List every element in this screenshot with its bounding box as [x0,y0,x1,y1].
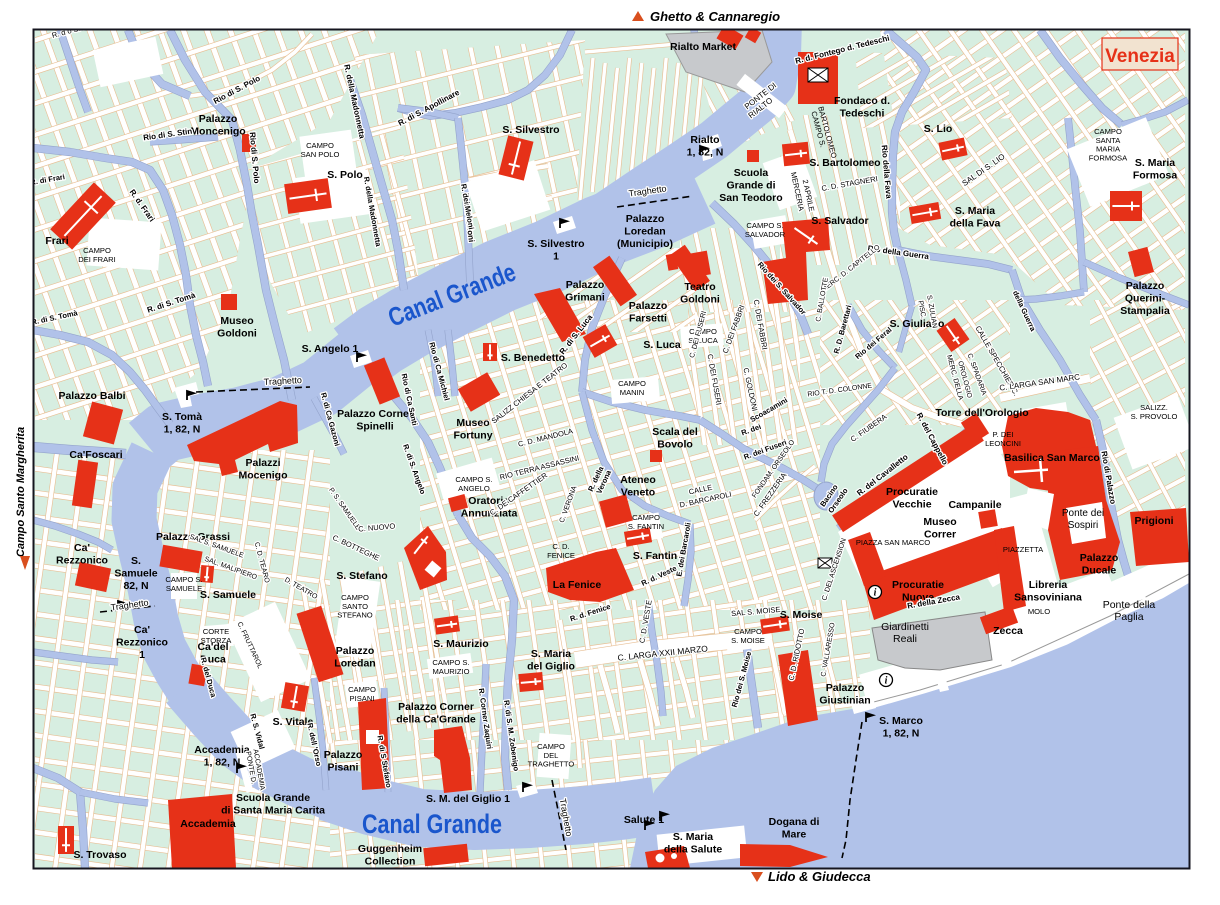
svg-text:Moncenigo: Moncenigo [190,125,245,137]
svg-text:Palazzo Corner: Palazzo Corner [337,408,413,420]
svg-text:Spinelli: Spinelli [356,420,393,432]
svg-text:Torre dell'Orologio: Torre dell'Orologio [935,407,1028,419]
svg-text:Prigioni: Prigioni [1134,515,1173,527]
svg-text:Scuola: Scuola [734,167,769,179]
svg-text:SAN POLO: SAN POLO [301,150,340,159]
svg-text:S. Trovaso: S. Trovaso [73,849,126,861]
svg-text:Rialto: Rialto [690,134,719,146]
svg-text:Tedeschi: Tedeschi [840,107,885,119]
svg-text:Palazzo Corner: Palazzo Corner [398,701,474,713]
svg-text:Libreria: Libreria [1029,579,1068,591]
svg-text:Samuele: Samuele [114,567,157,579]
svg-text:1, 82, N: 1, 82, N [164,423,201,435]
svg-text:Palazzo: Palazzo [629,300,668,312]
svg-text:S. Salvador: S. Salvador [811,215,868,227]
svg-text:SANTO: SANTO [342,602,368,611]
svg-text:CAMPO: CAMPO [341,593,369,602]
svg-text:Canal Grande: Canal Grande [362,809,502,839]
svg-text:Palazzo: Palazzo [566,279,605,291]
svg-text:Basilica San Marco: Basilica San Marco [1004,452,1100,464]
svg-text:SAMUELE: SAMUELE [166,584,202,593]
svg-text:1, 82, N: 1, 82, N [883,727,920,739]
svg-text:Fortuny: Fortuny [453,429,492,441]
svg-text:S. Lio: S. Lio [924,123,953,135]
svg-text:CORTE: CORTE [203,627,229,636]
svg-text:della Fava: della Fava [950,217,1001,229]
svg-text:S.: S. [131,555,141,567]
svg-text:Loredan: Loredan [624,225,665,237]
svg-text:Palazzo: Palazzo [199,113,238,125]
svg-text:Sospiri: Sospiri [1068,520,1099,531]
svg-text:La Fenice: La Fenice [553,579,602,591]
svg-text:CAMPO: CAMPO [306,141,334,150]
svg-text:Traghetto: Traghetto [264,375,303,387]
svg-text:P. DEI: P. DEI [993,430,1014,439]
svg-text:Accademia: Accademia [180,818,236,830]
svg-text:Grande di: Grande di [726,179,775,191]
svg-text:S. Fantin: S. Fantin [633,550,677,562]
svg-text:Palazzo: Palazzo [826,682,865,694]
svg-text:i: i [885,676,888,687]
svg-text:Lido & Giudecca: Lido & Giudecca [768,869,871,884]
svg-text:Rezzonico: Rezzonico [56,554,108,566]
svg-text:Farsetti: Farsetti [629,312,667,324]
svg-text:S. Maria: S. Maria [955,205,995,217]
svg-text:San Teodoro: San Teodoro [719,192,782,204]
svg-text:Museo: Museo [923,516,956,528]
svg-text:Palazzo: Palazzo [626,213,665,225]
svg-text:S. PROVOLO: S. PROVOLO [1131,412,1178,421]
svg-text:CAMPO: CAMPO [632,513,660,522]
svg-text:CAMPO: CAMPO [83,246,111,255]
svg-text:MANIN: MANIN [620,388,644,397]
svg-text:CAMPO: CAMPO [1094,127,1122,136]
svg-text:S. Samuele: S. Samuele [200,589,256,601]
svg-text:Fondaco d.: Fondaco d. [834,95,890,107]
svg-text:ANGELO: ANGELO [458,484,490,493]
svg-text:S. Moise: S. Moise [780,609,823,621]
svg-text:della Ca'Grande: della Ca'Grande [396,713,476,725]
svg-text:Dogana di: Dogana di [769,816,820,828]
svg-text:CAMPO: CAMPO [537,742,565,751]
svg-text:Campo Santo Margherita: Campo Santo Margherita [15,427,27,557]
svg-text:Frari: Frari [45,235,68,247]
svg-text:MAURIZIO: MAURIZIO [432,667,469,676]
svg-text:S. Polo: S. Polo [327,169,363,181]
svg-text:CAMPO S.: CAMPO S. [165,575,202,584]
svg-text:Palazzo Balbi: Palazzo Balbi [58,390,125,402]
svg-text:Palazzi: Palazzi [245,457,280,469]
svg-text:82, N: 82, N [123,580,148,592]
svg-text:Collection: Collection [365,855,416,867]
svg-text:S. Tomà: S. Tomà [162,411,202,423]
svg-text:TRAGHETTO: TRAGHETTO [528,760,575,769]
svg-text:Teatro: Teatro [684,281,715,293]
svg-text:Vecchie: Vecchie [892,498,931,510]
svg-text:DEL: DEL [544,751,559,760]
svg-text:Ca': Ca' [134,624,150,636]
svg-text:di Santa Maria Carita: di Santa Maria Carita [221,804,325,816]
svg-text:Pisani: Pisani [328,761,359,773]
svg-text:Ghetto & Cannaregio: Ghetto & Cannaregio [650,9,780,24]
svg-text:MOLO: MOLO [1028,607,1050,616]
svg-text:Bovolo: Bovolo [657,438,693,450]
svg-text:DEI FRARI: DEI FRARI [78,255,116,264]
svg-text:Guggenheim: Guggenheim [358,843,422,855]
svg-text:1, 82, N: 1, 82, N [204,756,241,768]
svg-text:C. D.: C. D. [552,542,569,551]
svg-text:Campanile: Campanile [948,499,1001,511]
svg-text:MARIA: MARIA [1096,145,1121,154]
svg-text:Ponte della: Ponte della [1103,599,1156,611]
svg-text:S. MOISE: S. MOISE [731,636,765,645]
svg-text:Palazzo: Palazzo [336,645,375,657]
svg-text:S. M. del Giglio 1: S. M. del Giglio 1 [426,793,510,805]
svg-text:FENICE: FENICE [547,551,575,560]
svg-text:Stampalia: Stampalia [1120,305,1170,317]
svg-text:PIAZZA SAN MARCO: PIAZZA SAN MARCO [856,538,930,547]
svg-text:S. Marco: S. Marco [879,715,923,727]
svg-text:Palazzo: Palazzo [1126,280,1165,292]
svg-text:S. Stefano: S. Stefano [336,570,387,582]
svg-text:1: 1 [553,250,559,262]
svg-text:S. Silvestro: S. Silvestro [502,124,559,136]
svg-text:S. Maurizio: S. Maurizio [433,638,488,650]
svg-text:S. Maria: S. Maria [531,648,571,660]
svg-text:Ponte dei: Ponte dei [1062,508,1104,519]
svg-text:SALVADOR: SALVADOR [745,230,786,239]
svg-text:SALIZZ.: SALIZZ. [1140,403,1168,412]
svg-text:CAMPO: CAMPO [618,379,646,388]
svg-text:S. FANTIN: S. FANTIN [628,522,664,531]
svg-text:Giardinetti: Giardinetti [881,621,929,633]
svg-text:CAMPO: CAMPO [348,685,376,694]
svg-text:CAMPO S.: CAMPO S. [746,221,783,230]
svg-text:Formosa: Formosa [1133,169,1178,181]
svg-text:Accademia: Accademia [194,744,250,756]
svg-text:Sansoviniana: Sansoviniana [1014,591,1082,603]
svg-text:Querini-: Querini- [1125,292,1166,304]
svg-text:S. Bartolomeo: S. Bartolomeo [809,157,880,169]
svg-text:Ca': Ca' [74,542,90,554]
svg-text:Paglia: Paglia [1114,611,1143,623]
svg-text:Museo: Museo [456,417,489,429]
svg-text:STORZA: STORZA [201,636,233,645]
svg-text:S. Silvestro: S. Silvestro [527,238,584,250]
svg-text:Procuratie: Procuratie [892,579,944,591]
svg-text:FORMOSA: FORMOSA [1089,153,1128,162]
svg-text:Salute 1: Salute 1 [624,814,664,826]
svg-text:Giustinian: Giustinian [819,694,870,706]
svg-text:1, 82, N: 1, 82, N [687,146,724,158]
svg-text:Ducale: Ducale [1082,564,1117,576]
svg-text:Grimani: Grimani [565,291,605,303]
svg-text:SANTA: SANTA [1096,136,1122,145]
svg-text:CAMPO S.: CAMPO S. [455,475,492,484]
svg-text:PISANI: PISANI [350,694,375,703]
svg-text:(Municipio): (Municipio) [617,238,673,250]
svg-text:S. Luca: S. Luca [643,339,681,351]
svg-text:S. Angelo 1: S. Angelo 1 [302,343,359,355]
svg-text:Rezzonico: Rezzonico [116,636,168,648]
svg-text:Veneto: Veneto [621,486,655,498]
svg-text:Procuratie: Procuratie [886,486,938,498]
svg-text:della Salute: della Salute [664,843,723,855]
svg-text:CAMPO: CAMPO [734,627,762,636]
svg-text:STEFANO: STEFANO [337,611,373,620]
svg-text:S. Maria: S. Maria [1135,157,1175,169]
svg-text:Mocenigo: Mocenigo [239,469,288,481]
svg-text:Zecca: Zecca [993,625,1023,637]
svg-text:Goldoni: Goldoni [680,293,720,305]
svg-text:Reali: Reali [893,633,917,645]
svg-text:Mare: Mare [782,828,807,840]
svg-text:Museo: Museo [220,315,253,327]
svg-text:Loredan: Loredan [334,657,375,669]
svg-text:Goldoni: Goldoni [217,327,257,339]
svg-text:Venezia: Venezia [1105,46,1175,67]
svg-text:1: 1 [139,649,145,661]
svg-text:S. Maria: S. Maria [673,831,713,843]
svg-text:LEONCINI: LEONCINI [985,439,1021,448]
svg-text:S. Benedetto: S. Benedetto [501,352,565,364]
svg-text:PIAZZETTA: PIAZZETTA [1003,545,1044,554]
svg-text:Scala del: Scala del [652,426,698,438]
svg-text:Rialto Market: Rialto Market [670,41,736,53]
svg-text:del Giglio: del Giglio [527,660,575,672]
svg-text:Ateneo: Ateneo [620,474,656,486]
svg-text:Scuola Grande: Scuola Grande [236,792,310,804]
svg-text:Palazzo: Palazzo [1080,552,1119,564]
svg-text:Ca'Foscari: Ca'Foscari [69,449,122,461]
svg-text:i: i [874,588,877,599]
svg-text:Palazzo: Palazzo [324,749,363,761]
svg-text:CAMPO S.: CAMPO S. [432,658,469,667]
